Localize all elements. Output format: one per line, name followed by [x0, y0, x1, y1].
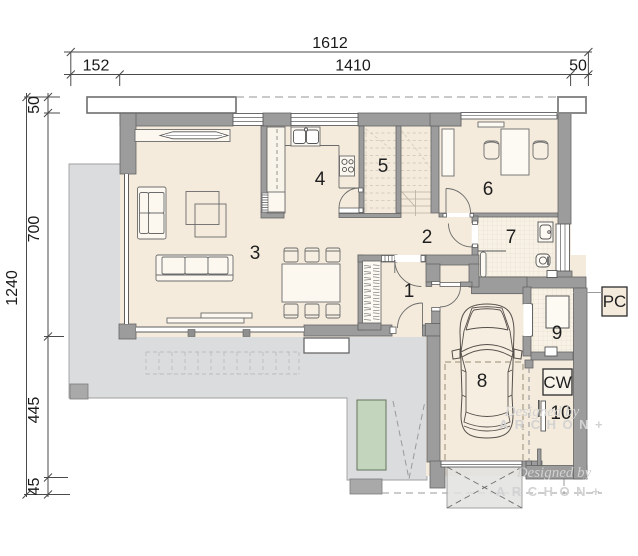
svg-text:152: 152: [83, 58, 110, 75]
svg-text:ARCHON+: ARCHON+: [496, 484, 606, 499]
svg-text:9: 9: [552, 323, 563, 344]
svg-text:45: 45: [26, 478, 43, 496]
svg-text:6: 6: [483, 179, 494, 200]
svg-text:5: 5: [378, 156, 389, 177]
svg-text:CW: CW: [543, 373, 571, 392]
svg-text:PC: PC: [603, 292, 627, 311]
svg-text:2: 2: [422, 227, 433, 248]
svg-text:4: 4: [315, 169, 326, 190]
svg-text:Designed by: Designed by: [516, 465, 592, 481]
svg-text:50: 50: [569, 58, 587, 75]
svg-text:1612: 1612: [312, 35, 348, 52]
svg-text:3: 3: [250, 243, 261, 264]
svg-text:ARCHON+: ARCHON+: [499, 417, 609, 432]
svg-text:700: 700: [26, 216, 43, 243]
svg-text:1410: 1410: [335, 58, 371, 75]
svg-text:1: 1: [404, 281, 415, 302]
svg-text:50: 50: [26, 96, 43, 114]
svg-text:445: 445: [26, 397, 43, 424]
svg-text:7: 7: [506, 227, 517, 248]
svg-text:8: 8: [477, 371, 488, 392]
svg-text:1240: 1240: [4, 270, 21, 306]
